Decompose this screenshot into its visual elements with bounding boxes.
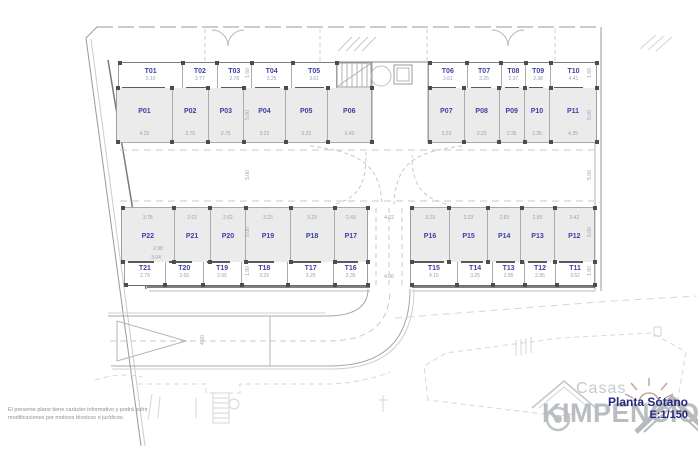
column-marker: [163, 283, 167, 287]
dimension-label: 4.06: [384, 274, 394, 280]
column-marker: [549, 140, 553, 144]
stall-T04: T043.25: [251, 63, 291, 88]
stall-dim: 2.43: [335, 215, 367, 221]
stall-P03: P032.75: [208, 88, 244, 142]
column-marker: [208, 260, 212, 264]
stall-dim: 2.85: [493, 273, 523, 279]
dimension-label: 4.02: [384, 215, 394, 221]
column-marker: [289, 206, 293, 210]
disclaimer-line: modificaciones por motivos técnicos o ju…: [8, 414, 178, 422]
disclaimer-line: El presente plano tiene carácter informa…: [8, 406, 178, 414]
column-marker: [289, 260, 293, 264]
stall-T19: T192.65: [203, 262, 241, 285]
column-marker: [201, 283, 205, 287]
stall-label: P08: [465, 108, 499, 116]
dimension-label: 5.00: [587, 110, 593, 120]
column-marker: [524, 61, 528, 65]
stall-label: T20: [166, 265, 203, 273]
stall-dim: 2.65: [166, 273, 203, 279]
column-marker: [170, 140, 174, 144]
stall-T13: T132.85: [492, 262, 523, 285]
stall-dim: 2.35: [334, 273, 367, 279]
stall-label: T08: [502, 68, 526, 76]
stall-front-wall: [414, 261, 444, 263]
column-marker: [121, 206, 125, 210]
stall-T20: T202.65: [165, 262, 203, 285]
stall-label: T02: [183, 68, 216, 76]
column-marker: [118, 61, 122, 65]
stall-P16: P163.23: [411, 208, 449, 262]
stall-T14: T143.25: [457, 262, 493, 285]
stall-dim: 3.78: [122, 215, 174, 221]
stall-label: T12: [525, 265, 555, 273]
stall-label: T21: [125, 265, 165, 273]
stall-label: T17: [288, 265, 333, 273]
stall-label: P17: [335, 233, 367, 241]
column-marker: [595, 140, 599, 144]
stall-front-wall: [128, 261, 154, 263]
dimension-label: 2.98: [153, 246, 163, 252]
column-marker: [333, 283, 337, 287]
column-marker: [286, 283, 290, 287]
stall-P22: P223.78: [122, 208, 174, 262]
stall-label: T09: [526, 68, 550, 76]
stall-P02: P022.75: [172, 88, 208, 142]
column-marker: [326, 86, 330, 90]
stall-dim: 3.23: [286, 131, 327, 137]
stall-label: P15: [450, 233, 487, 241]
stall-front-wall: [291, 261, 321, 263]
column-marker: [549, 61, 553, 65]
column-marker: [593, 206, 597, 210]
column-marker: [595, 61, 599, 65]
column-marker: [549, 86, 553, 90]
column-marker: [520, 206, 524, 210]
stall-label: P13: [521, 233, 553, 241]
stall-T16: T162.35: [333, 262, 367, 285]
stall-dim: 2.37: [502, 76, 526, 82]
column-marker: [250, 61, 254, 65]
stall-label: P19: [246, 233, 289, 241]
stall-dim: 2.38: [526, 76, 550, 82]
stall-P10: P102.35: [524, 88, 549, 142]
stall-dim: 3.61: [429, 76, 467, 82]
stall-P17: P172.43: [334, 208, 367, 262]
dimension-label: 5.00: [245, 227, 251, 237]
column-marker: [208, 206, 212, 210]
stall-dim: 3.23: [244, 131, 285, 137]
column-marker: [242, 86, 246, 90]
stall-T09: T092.38: [525, 63, 550, 88]
stall-P14: P142.83: [487, 208, 520, 262]
stall-dim: 3.23: [246, 215, 289, 221]
column-marker: [593, 260, 597, 264]
dimension-label: 4.00: [200, 335, 206, 345]
column-marker: [291, 61, 295, 65]
column-marker: [116, 140, 120, 144]
stall-P07: P073.23: [429, 88, 464, 142]
column-marker: [595, 86, 599, 90]
stall-T07: T073.25: [467, 63, 501, 88]
stall-dim: 4.35: [550, 131, 596, 137]
stall-dim: 3.23: [411, 215, 449, 221]
stall-dim: 3.43: [328, 131, 371, 137]
dimension-label: 5.00: [587, 170, 593, 180]
stall-block: P163.23P153.23P142.83P132.83P123.42: [410, 207, 595, 262]
dimension-label: 3.04: [151, 255, 161, 261]
stall-P15: P153.23: [449, 208, 487, 262]
column-marker: [447, 260, 451, 264]
stall-dim: 2.75: [209, 131, 244, 137]
stall-T01: T015.10: [119, 63, 182, 88]
stall-dim: 3.42: [555, 215, 594, 221]
column-marker: [465, 61, 469, 65]
stall-label: T13: [493, 265, 523, 273]
column-marker: [215, 61, 219, 65]
dimension-label: 1.80: [587, 266, 593, 276]
column-marker: [593, 283, 597, 287]
stall-dim: 3.25: [252, 76, 291, 82]
stall-label: T01: [119, 68, 182, 76]
stall-label: P09: [500, 108, 524, 116]
column-marker: [553, 260, 557, 264]
column-marker: [366, 206, 370, 210]
column-marker: [333, 206, 337, 210]
stall-T08: T082.37: [501, 63, 526, 88]
column-marker: [242, 140, 246, 144]
stall-label: T05: [292, 68, 336, 76]
column-marker: [244, 206, 248, 210]
column-marker: [240, 283, 244, 287]
stall-label: T07: [468, 68, 501, 76]
column-marker: [486, 206, 490, 210]
stall-label: P06: [328, 108, 371, 116]
stall-front-wall: [245, 261, 275, 263]
stall-label: P16: [411, 233, 449, 241]
column-marker: [410, 260, 414, 264]
stall-label: T16: [334, 265, 367, 273]
stall-P18: P183.23: [290, 208, 334, 262]
dimension-label: 5.00: [587, 227, 593, 237]
column-marker: [410, 283, 414, 287]
stall-front-wall: [528, 261, 547, 263]
column-marker: [523, 283, 527, 287]
column-marker: [428, 61, 432, 65]
column-marker: [284, 140, 288, 144]
column-marker: [121, 260, 125, 264]
stall-P13: P132.83: [520, 208, 553, 262]
column-marker: [499, 61, 503, 65]
stall-P06: P063.43: [327, 88, 371, 142]
stall-dim: 2.85: [525, 273, 555, 279]
stall-dim: 2.35: [500, 131, 524, 137]
column-marker: [366, 283, 370, 287]
stall-block: T015.10T022.77T032.78T043.25T053.61: [118, 62, 337, 88]
column-marker: [170, 86, 174, 90]
stall-label: P03: [209, 108, 244, 116]
column-marker: [366, 260, 370, 264]
column-marker: [244, 260, 248, 264]
dimension-label: 1.80: [245, 266, 251, 276]
stall-T12: T122.85: [524, 262, 555, 285]
dimension-label: 1.60: [245, 68, 251, 78]
column-marker: [462, 86, 466, 90]
stall-label: P07: [429, 108, 464, 116]
column-marker: [181, 61, 185, 65]
stall-T17: T173.25: [287, 262, 333, 285]
stall-dim: 2.75: [173, 131, 208, 137]
column-marker: [553, 206, 557, 210]
stall-label: T19: [204, 265, 241, 273]
column-marker: [523, 86, 527, 90]
title-block: Planta Sótano E:1/150: [608, 396, 688, 422]
dimension-label: 5.00: [245, 110, 251, 120]
stall-label: P22: [122, 233, 174, 241]
column-marker: [486, 260, 490, 264]
stall-dim: 2.79: [125, 273, 165, 279]
column-marker: [172, 206, 176, 210]
column-marker: [428, 140, 432, 144]
plan-title: Planta Sótano: [608, 396, 688, 409]
stall-P09: P092.35: [499, 88, 524, 142]
stall-dim: 3.25: [458, 273, 493, 279]
stall-dim: 2.83: [488, 215, 520, 221]
stall-P05: P053.23: [285, 88, 327, 142]
column-marker: [206, 140, 210, 144]
column-marker: [284, 86, 288, 90]
column-marker: [410, 206, 414, 210]
stall-label: P21: [175, 233, 210, 241]
stall-dim: 3.23: [465, 131, 499, 137]
stall-block: T063.61T073.25T082.37T092.38T104.41: [428, 62, 597, 88]
dimension-label: 5.00: [245, 170, 251, 180]
stall-dim: 4.15: [411, 273, 457, 279]
stall-label: P10: [525, 108, 549, 116]
stall-dim: 2.65: [204, 273, 241, 279]
stall-dim: 3.25: [288, 273, 333, 279]
stall-label: T15: [411, 265, 457, 273]
stall-T06: T063.61: [429, 63, 467, 88]
stall-label: P18: [291, 233, 334, 241]
column-marker: [370, 140, 374, 144]
stall-label: P20: [211, 233, 246, 241]
stall-P20: P202.62: [210, 208, 246, 262]
column-marker: [124, 283, 128, 287]
stall-label: P01: [117, 108, 172, 116]
column-marker: [116, 86, 120, 90]
column-marker: [462, 140, 466, 144]
column-marker: [172, 260, 176, 264]
stall-P01: P014.25: [117, 88, 172, 142]
stall-dim: 3.23: [291, 215, 334, 221]
column-marker: [523, 140, 527, 144]
column-marker: [447, 206, 451, 210]
stall-T05: T053.61: [291, 63, 336, 88]
stall-T15: T154.15: [411, 262, 457, 285]
column-marker: [335, 61, 339, 65]
stall-T02: T022.77: [182, 63, 216, 88]
stall-label: P02: [173, 108, 208, 116]
column-marker: [520, 260, 524, 264]
stall-P08: P083.23: [464, 88, 499, 142]
stall-dim: 5.10: [119, 76, 182, 82]
stall-label: P05: [286, 108, 327, 116]
column-marker: [206, 86, 210, 90]
stall-block: P014.25P022.75P032.75P043.23P053.23P063.…: [116, 88, 372, 143]
stall-dim: 2.83: [521, 215, 553, 221]
stall-P21: P212.62: [174, 208, 210, 262]
stall-front-wall: [337, 261, 357, 263]
disclaimer-note: El presente plano tiene carácter informa…: [8, 406, 178, 422]
column-marker: [497, 140, 501, 144]
stall-dim: 2.62: [211, 215, 246, 221]
column-marker: [491, 283, 495, 287]
dimension-label: 1.60: [587, 68, 593, 78]
plan-scale: E:1/150: [608, 409, 688, 422]
stall-label: P14: [488, 233, 520, 241]
stall-label: T06: [429, 68, 467, 76]
stall-front-wall: [461, 261, 483, 263]
stall-front-wall: [496, 261, 515, 263]
stall-dim: 3.61: [292, 76, 336, 82]
stall-block: P073.23P083.23P092.35P102.35P114.35: [428, 88, 597, 143]
column-marker: [428, 86, 432, 90]
column-marker: [333, 260, 337, 264]
column-marker: [326, 140, 330, 144]
stall-dim: 3.23: [429, 131, 464, 137]
floorplan-canvas: T015.10T022.77T032.78T043.25T053.61T063.…: [0, 0, 698, 450]
column-marker: [455, 283, 459, 287]
stall-dim: 2.62: [175, 215, 210, 221]
stall-label: T04: [252, 68, 291, 76]
stall-front-wall: [559, 261, 583, 263]
stall-dim: 2.35: [525, 131, 549, 137]
column-marker: [370, 86, 374, 90]
stall-dim: 4.25: [117, 131, 172, 137]
stall-T21: T212.79: [125, 262, 165, 285]
stall-dim: 2.77: [183, 76, 216, 82]
column-marker: [555, 283, 559, 287]
stall-label: T14: [458, 265, 493, 273]
stall-block: T154.15T143.25T132.85T122.85T113.52: [410, 262, 595, 286]
stall-P19: P193.23: [245, 208, 289, 262]
stall-dim: 3.23: [450, 215, 487, 221]
stall-dim: 3.25: [468, 76, 501, 82]
column-marker: [497, 86, 501, 90]
